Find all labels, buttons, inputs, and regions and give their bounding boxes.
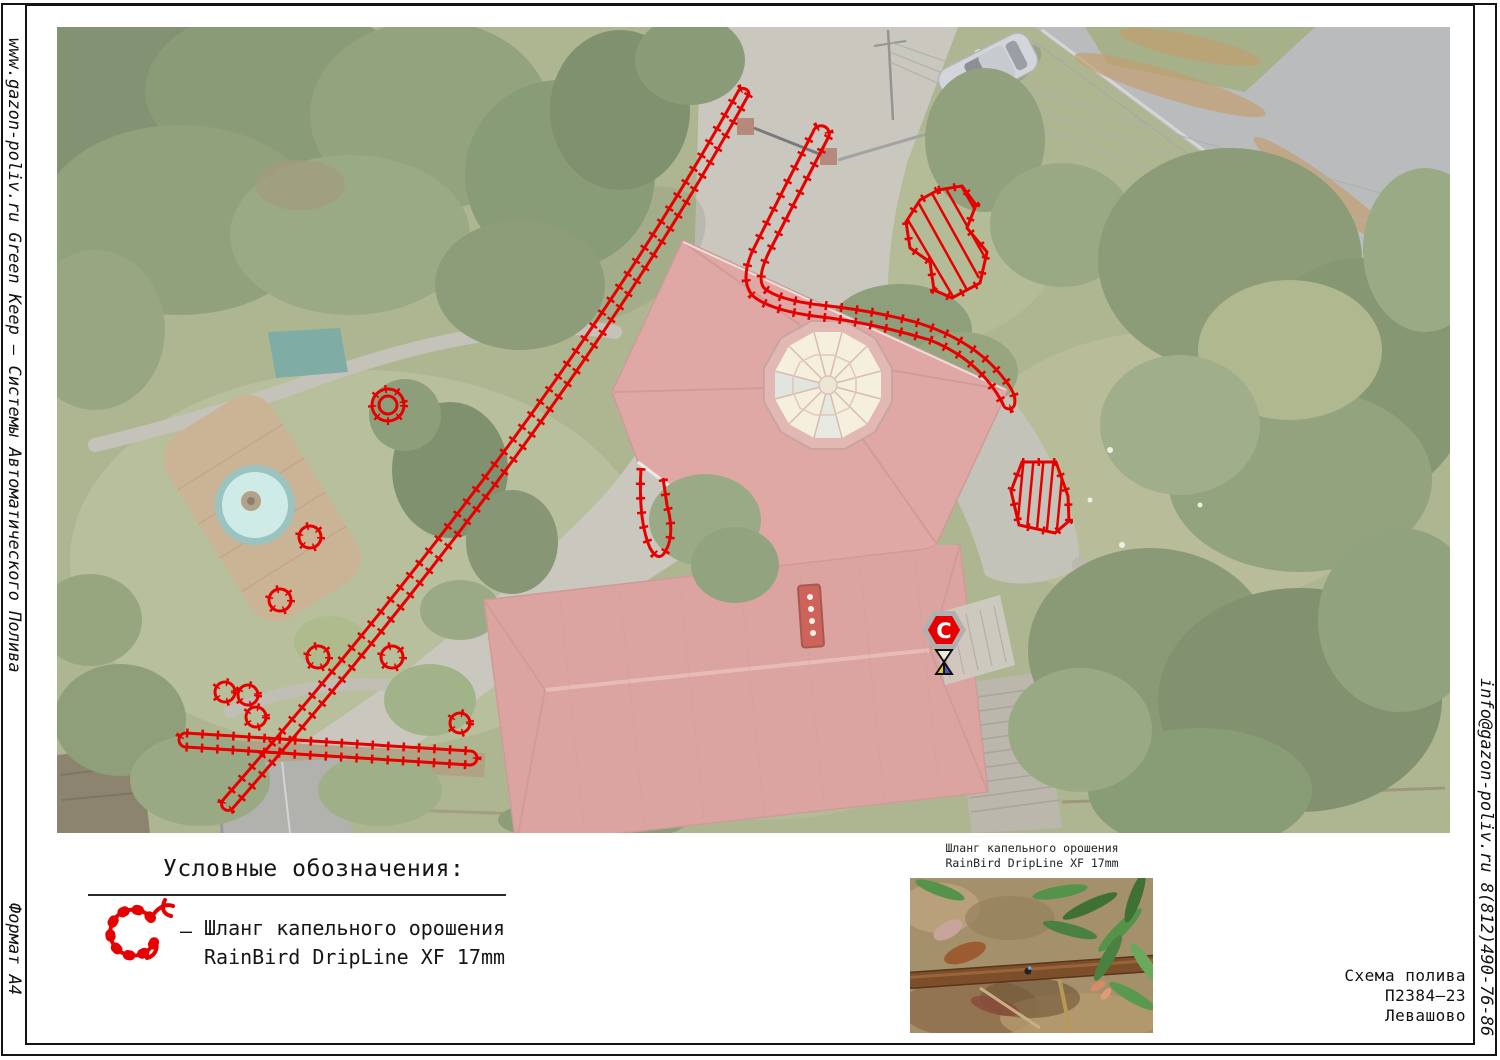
right-strip-text: info@gazon-poliv.ru 8(812)490-76-86 bbox=[1476, 678, 1496, 1036]
title-block: Схема полива П2384—23 Левашово bbox=[1166, 966, 1466, 1026]
title-block-project: Схема полива bbox=[1166, 966, 1466, 986]
legend-item-dash: – bbox=[180, 919, 192, 943]
controller-marker: С bbox=[925, 614, 963, 647]
legend-title: Условные обозначения: bbox=[163, 856, 464, 882]
controller-label: С bbox=[936, 619, 951, 643]
format-label: Формат А4 bbox=[4, 903, 24, 995]
legend-item-line2: RainBird DripLine XF 17mm bbox=[204, 945, 505, 969]
inset-caption-line1: Шланг капельного орошения bbox=[872, 841, 1192, 855]
legend-divider bbox=[88, 894, 506, 896]
title-block-location: Левашово bbox=[1166, 1006, 1466, 1026]
title-block-number: П2384—23 bbox=[1166, 986, 1466, 1006]
legend-dripline-symbol bbox=[95, 898, 181, 968]
inset-photo bbox=[910, 878, 1153, 1033]
drawing-sheet: www.gazon-poliv.ru Green Keep – Системы … bbox=[0, 0, 1500, 1060]
legend-item-line1: Шланг капельного орошения bbox=[204, 916, 505, 940]
left-strip-text: www.gazon-poliv.ru Green Keep – Системы … bbox=[4, 38, 24, 673]
inset-caption-line2: RainBird DripLine XF 17mm bbox=[872, 856, 1192, 870]
aerial-plan: С bbox=[57, 27, 1450, 833]
